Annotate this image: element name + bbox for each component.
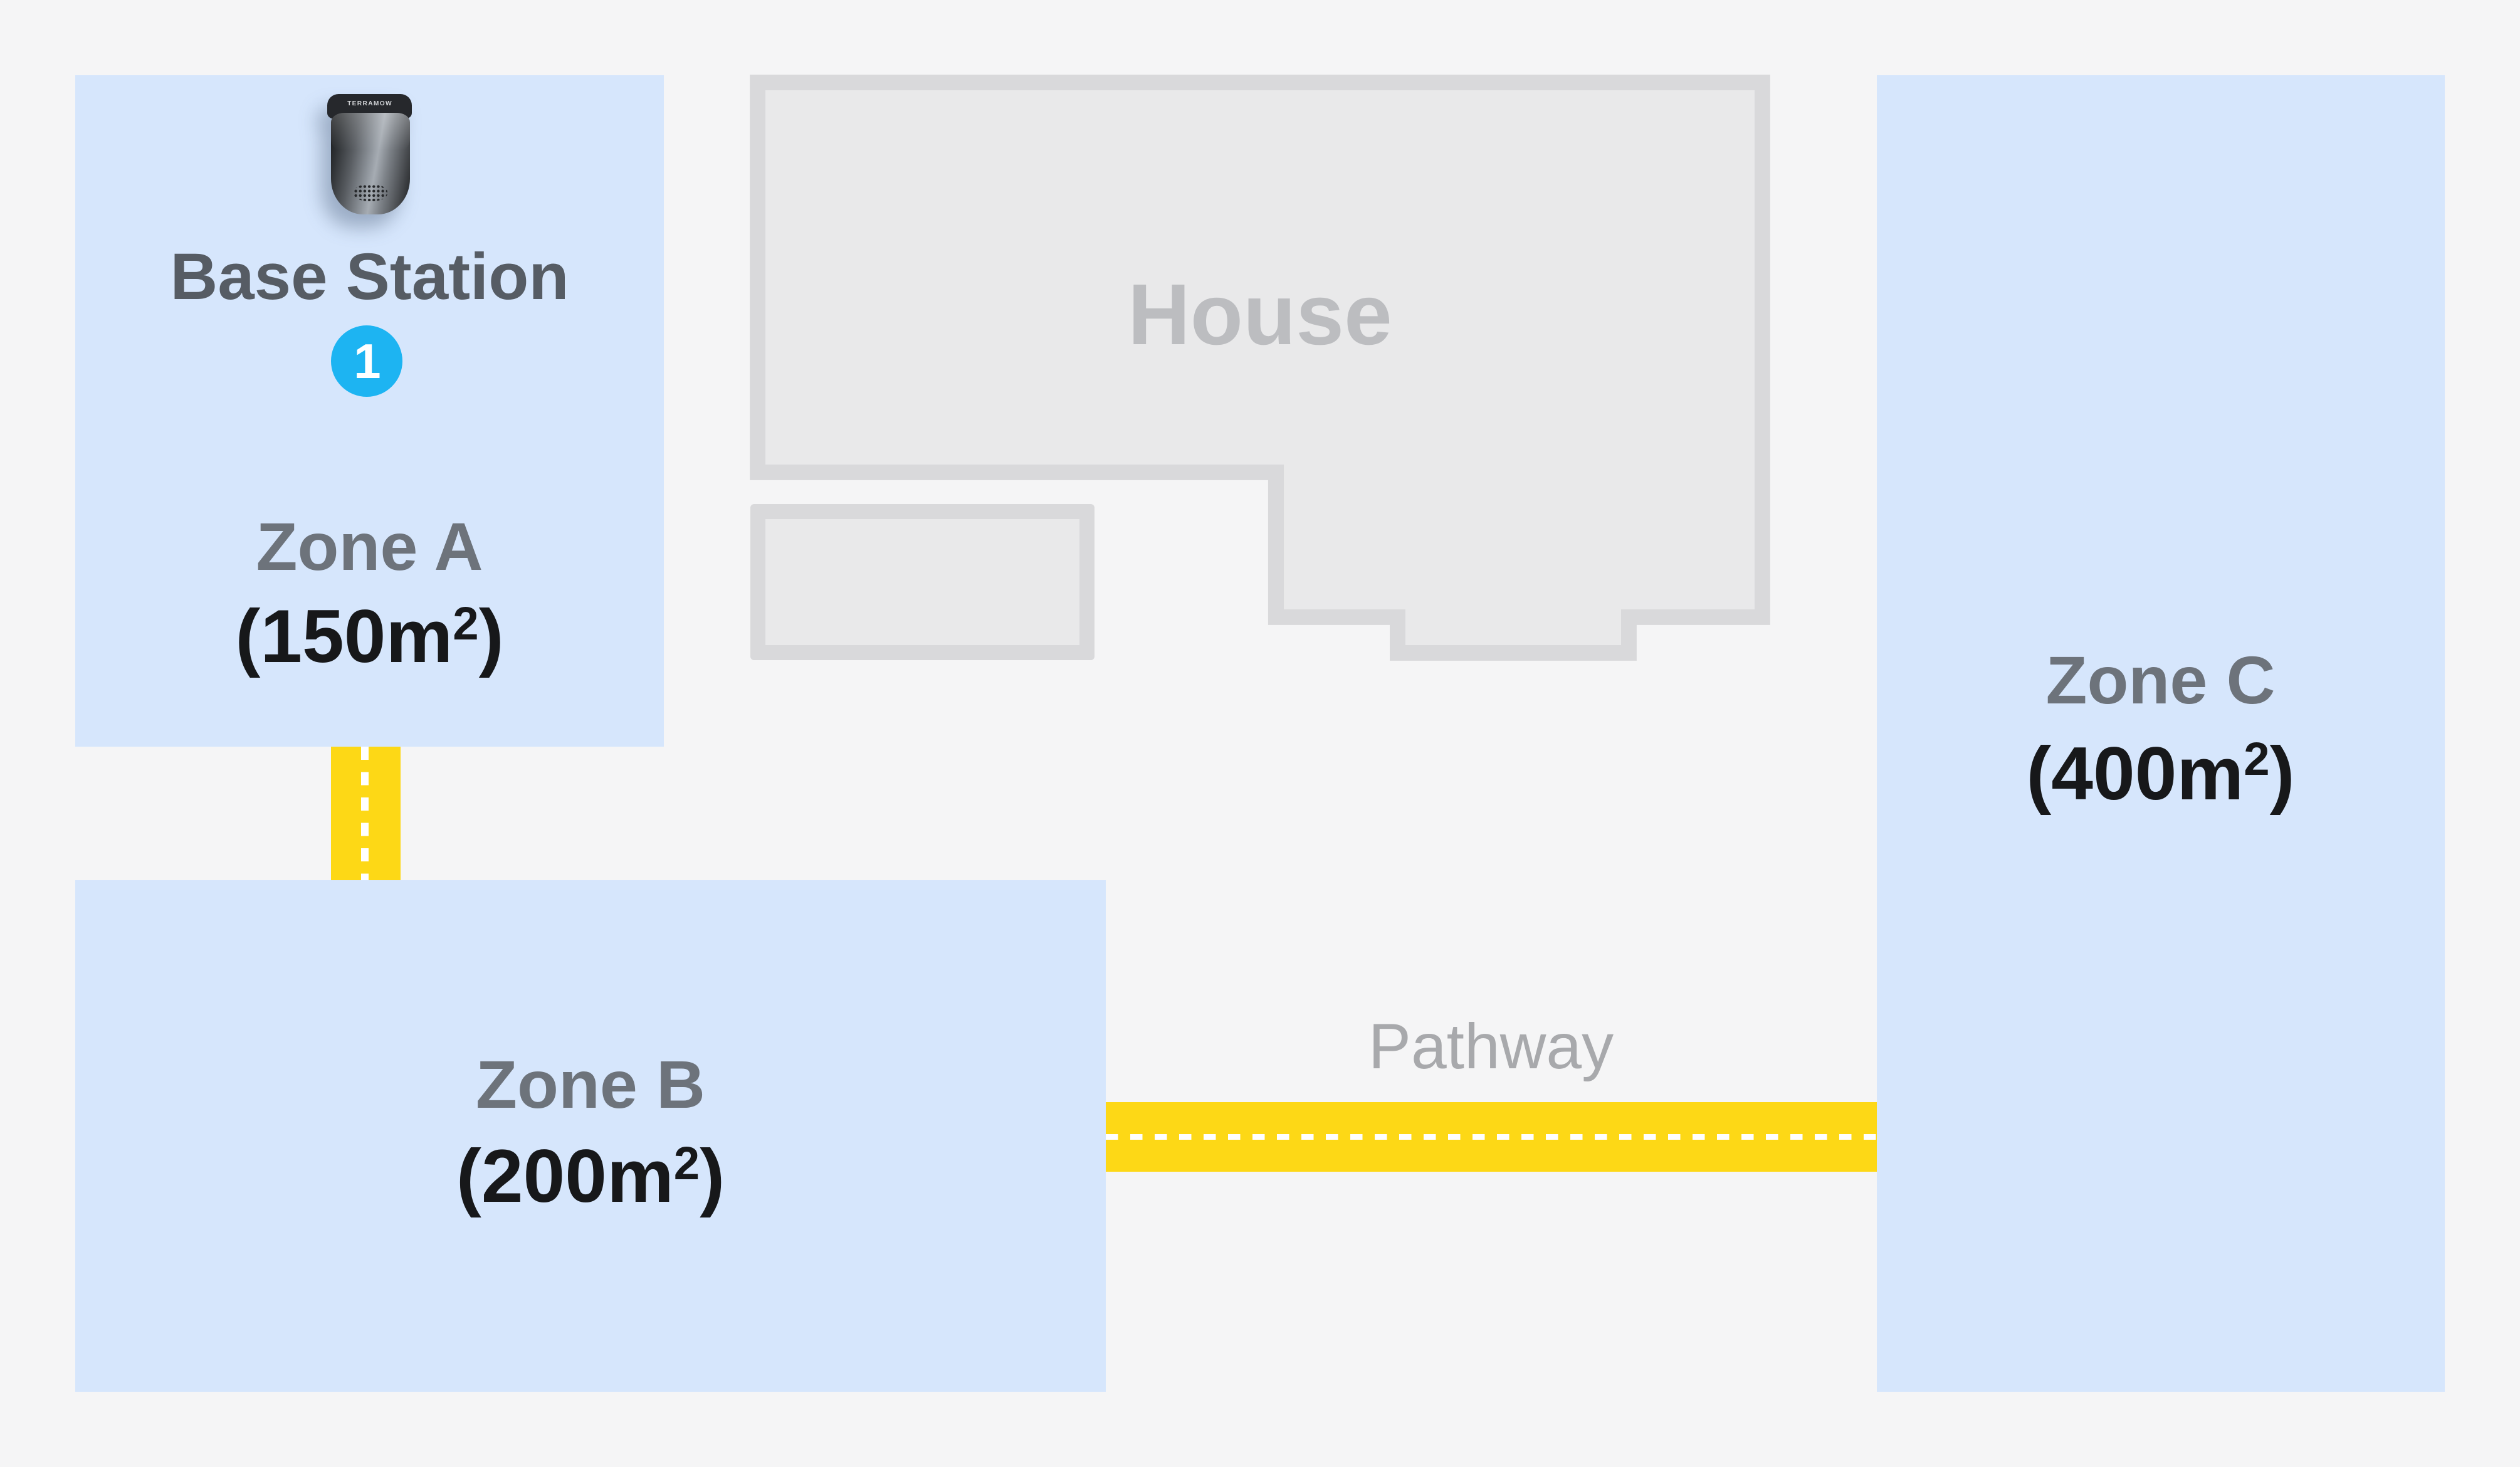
base-station-speaker-grille-icon xyxy=(353,184,387,201)
zone-b-area-exponent: 2 xyxy=(674,1140,700,1191)
zone-a-area-close-paren: ) xyxy=(479,597,504,680)
zone-b-area-value: 200 xyxy=(481,1137,607,1219)
zone-b-area-open-paren: ( xyxy=(456,1137,481,1219)
base-station-label: Base Station xyxy=(75,244,664,310)
base-station-number: 1 xyxy=(354,337,381,386)
zone-b-area-unit: m xyxy=(607,1137,674,1219)
yard-map-diagram: TERRAMOW Base Station 1 Zone A (150m2) Z… xyxy=(0,0,2520,1467)
zone-c-area-exponent: 2 xyxy=(2244,736,2269,787)
garage-outline xyxy=(750,505,1095,661)
zone-c-area-unit: m xyxy=(2177,733,2244,816)
zone-a-area-open-paren: ( xyxy=(235,597,260,680)
zone-a-name-label: Zone A xyxy=(75,514,664,582)
zone-a-area-label: (150m2) xyxy=(75,601,664,676)
pathway-label: Pathway xyxy=(1106,1016,1876,1080)
zone-a-area-exponent: 2 xyxy=(453,599,478,650)
zone-c-area-value: 400 xyxy=(2051,733,2176,816)
zone-c-area-label: (400m2) xyxy=(1876,737,2445,812)
zone-a-area-unit: m xyxy=(386,597,453,680)
zone-a-area-value: 150 xyxy=(260,597,386,680)
zone-b-name-label: Zone B xyxy=(75,1051,1106,1118)
zone-b-area-label: (200m2) xyxy=(75,1140,1106,1216)
zone-c-name-label: Zone C xyxy=(1876,648,2445,715)
house-label: House xyxy=(750,271,1770,358)
zone-c-area-open-paren: ( xyxy=(2026,733,2051,816)
base-station-device-gloss xyxy=(330,113,409,154)
base-station-device: TERRAMOW xyxy=(330,94,409,214)
base-station-brand-text: TERRAMOW xyxy=(330,102,409,108)
zone-b-area-close-paren: ) xyxy=(700,1137,725,1219)
zone-c-area-close-paren: ) xyxy=(2270,733,2295,816)
